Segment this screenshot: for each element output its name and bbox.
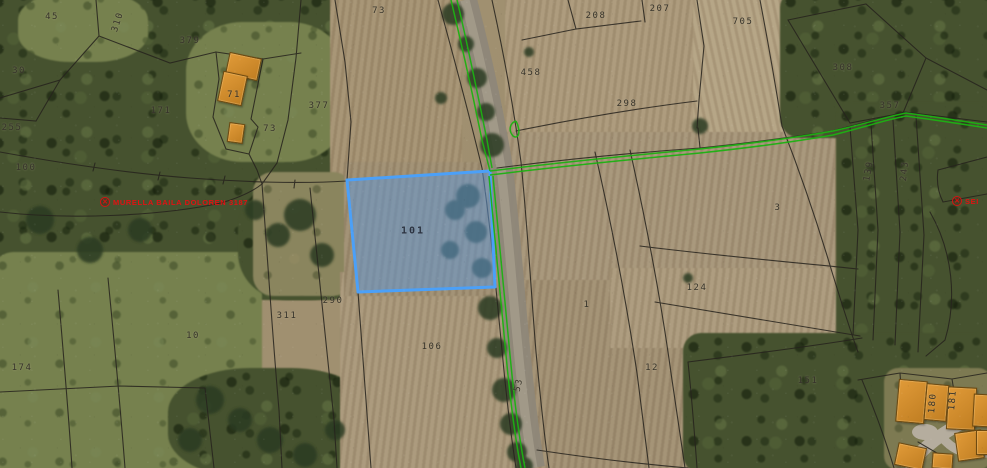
poi-label-right: ✕ SEI [952,196,979,206]
building-footprint [976,430,987,455]
poi-marker-icon[interactable]: ✕ [952,196,962,206]
poi-marker-icon[interactable]: ✕ [100,197,110,207]
poi-label-text: SEI [965,197,979,206]
map-vector-overlay [0,0,987,468]
building-footprint [972,394,987,428]
building-footprint [227,122,246,144]
building-footprint [931,452,953,468]
selected-parcel-number: 101 [401,226,425,237]
poi-label-left: ✕ MURELLA BAILA DOLOREN 3187 [100,197,248,207]
cadastral-map-canvas[interactable]: 4531037930171377737125510073208207705458… [0,0,987,468]
poi-label-text: MURELLA BAILA DOLOREN 3187 [113,198,248,207]
